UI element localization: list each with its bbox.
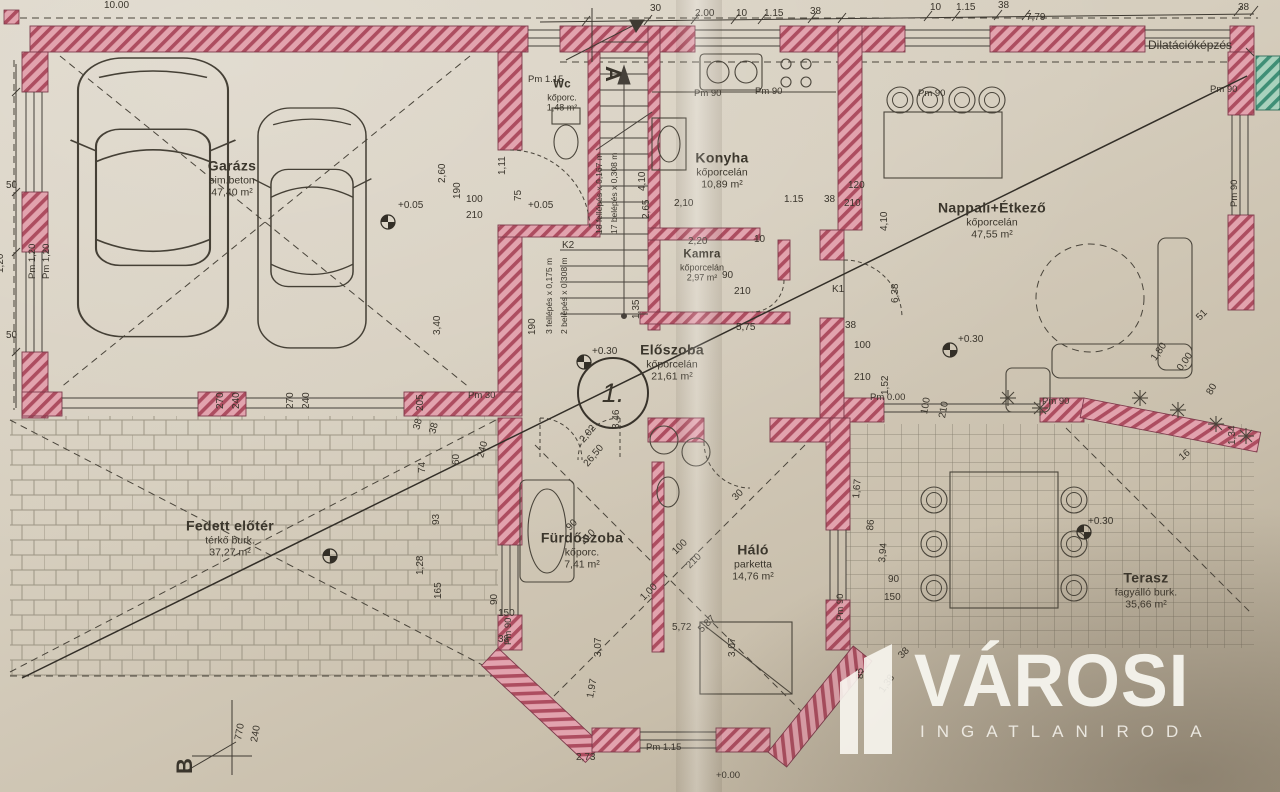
terrace-grid-floor [846,424,1254,648]
room-label-eloszoba: Előszoba kőporcelán 21,61 m² [640,341,704,382]
room-label-fedett-eloter: Fedett előtér térkő burk. 37,27 m² [186,517,274,558]
room-finish: kőporc. [547,92,578,103]
room-area: 35,66 m² [1115,598,1177,610]
room-area: 47,55 m² [938,228,1046,240]
room-area: 10,89 m² [695,178,748,190]
corner-detail [4,10,19,24]
room-name: Fürdőszoba [541,529,623,546]
room-finish: térkő burk. [186,534,274,546]
room-label-konyha: Konyha kőporcelán 10,89 m² [695,149,748,190]
room-name: Háló [732,541,773,558]
room-label-kamra: Kamra kőporcelán 2,97 m² [680,249,724,284]
room-finish: kőporcelán [938,216,1046,228]
room-area: 7,41 m² [541,558,623,570]
dilatation-wall [1256,56,1280,110]
room-area: 1,48 m² [547,103,578,114]
room-label-nappali-etkezo: Nappali+Étkező kőporcelán 47,55 m² [938,199,1046,240]
room-name: Kamra [680,249,724,263]
room-name: Terasz [1115,569,1177,586]
room-label-furdoszoba: Fürdőszoba kőporc. 7,41 m² [541,529,623,570]
room-label-halo: Háló parketta 14,76 m² [732,541,773,582]
room-name: Nappali+Étkező [938,199,1046,216]
wardrobe [700,622,792,694]
room-finish: kőporcelán [680,262,724,273]
room-finish: fagyálló burk. [1115,586,1177,598]
dining-set [884,87,1005,178]
room-area: 2,97 m² [680,273,724,284]
room-area: 14,76 m² [732,570,773,582]
room-name: Fedett előtér [186,517,274,534]
room-name: Konyha [695,149,748,166]
sofa-set [1006,238,1192,412]
room-finish: kőporcelán [695,166,748,178]
car-top-view [71,58,372,348]
room-label-wc: Wc kőporc. 1,48 m² [547,79,578,114]
room-finish: sim.beton [208,174,257,186]
room-name: Előszoba [640,341,704,358]
room-name: Garázs [208,157,257,174]
floorplan-photo: { "rooms": [ {"name":"Garázs","finish":"… [0,0,1280,792]
wc-toilet [552,108,580,159]
room-label-garazs: Garázs sim.beton 47,40 m² [208,157,257,198]
room-finish: parketta [732,558,773,570]
room-finish: kőporcelán [640,358,704,370]
room-label-terasz: Terasz fagyálló burk. 35,66 m² [1115,569,1177,610]
room-area: 37,27 m² [186,546,274,558]
room-area: 21,61 m² [640,370,704,382]
drawing-number-marker: 1. [577,357,649,429]
room-area: 47,40 m² [208,186,257,198]
room-name: Wc [547,79,578,93]
room-finish: kőporc. [541,546,623,558]
